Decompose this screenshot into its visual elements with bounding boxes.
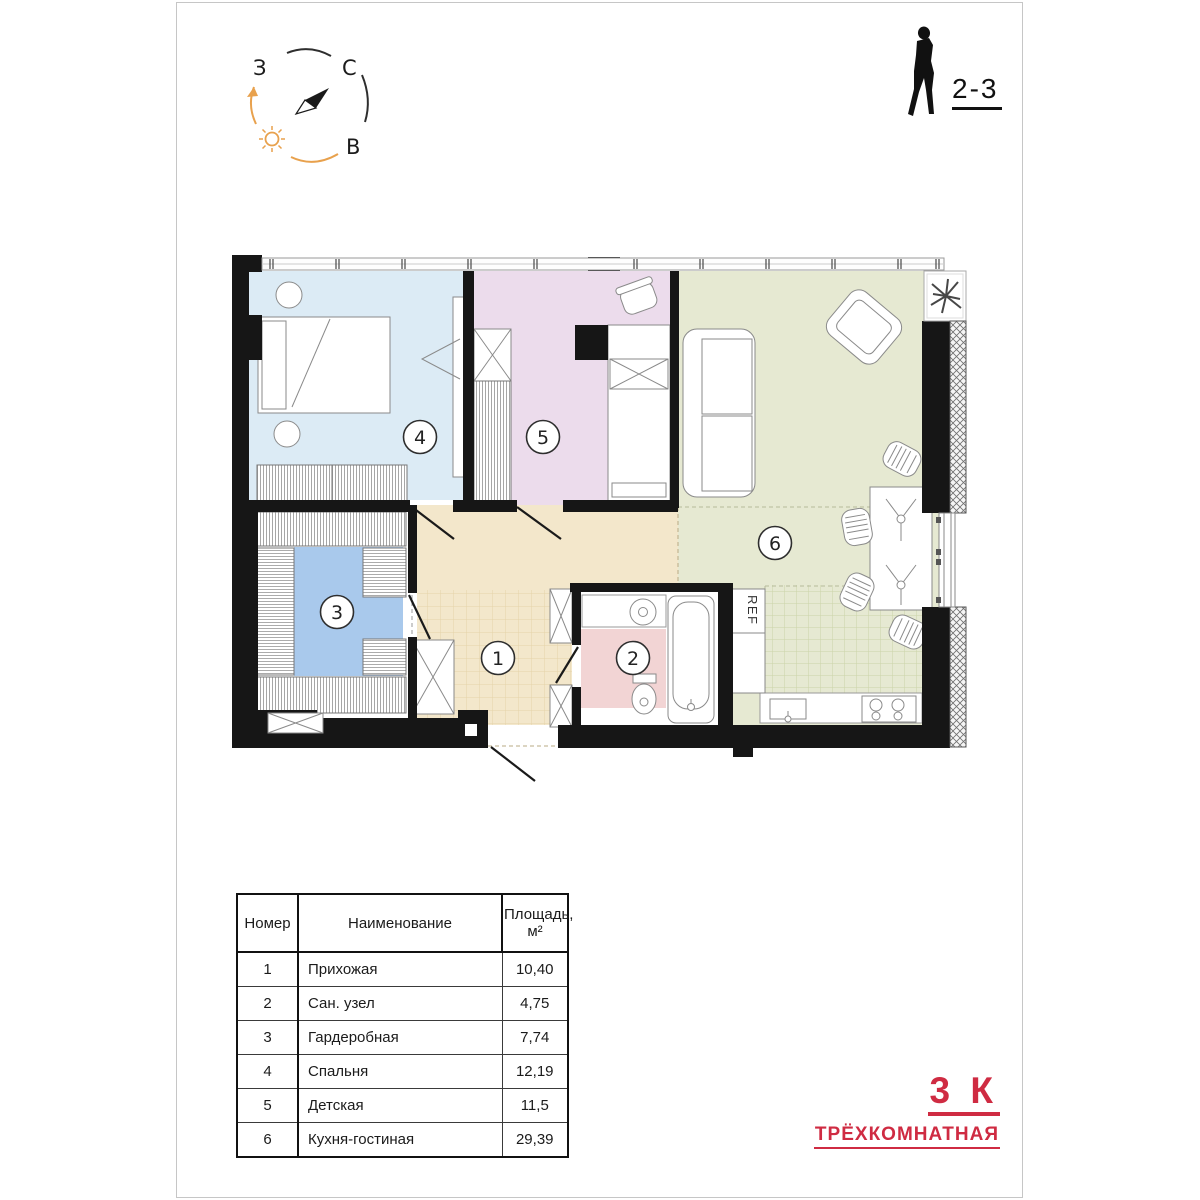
room-badge-6: 6: [759, 527, 792, 560]
table-row: 1 Прихожая 10,40: [237, 952, 568, 987]
compass-rose: З С В: [243, 26, 393, 166]
room-name: Детская: [298, 1089, 502, 1123]
apartment-type-short: 3 К: [928, 1072, 1000, 1116]
refrigerator-label: REF: [745, 595, 760, 626]
apartment-type-block: 3 К ТРЁХКОМНАТНАЯ: [700, 1072, 1000, 1149]
room-badge-1: 1: [482, 642, 515, 675]
col-header-area-line1: Площадь,: [504, 906, 573, 923]
room-number: 6: [237, 1123, 298, 1158]
single-bed: [608, 325, 670, 502]
table-row: 3 Гардеробная 7,74: [237, 1021, 568, 1055]
room-area: 7,74: [502, 1021, 568, 1055]
col-header-name: Наименование: [298, 894, 502, 952]
walking-person-icon: [905, 26, 941, 118]
svg-text:3: 3: [331, 602, 343, 624]
table-row: 5 Детская 11,5: [237, 1089, 568, 1123]
wall-cabinet: [453, 297, 464, 477]
room-name: Кухня-гостиная: [298, 1123, 502, 1158]
room-area: 11,5: [502, 1089, 568, 1123]
bedroom-wardrobe: [257, 465, 407, 503]
compass-arc-north: [287, 49, 331, 56]
svg-text:1: 1: [492, 648, 504, 670]
room-number: 1: [237, 952, 298, 987]
compass-arc-east: [362, 75, 368, 122]
sun-icon: [259, 126, 285, 152]
room-number: 5: [237, 1089, 298, 1123]
compass-arc-south-orange: [291, 154, 338, 162]
room-name: Гардеробная: [298, 1021, 502, 1055]
rooms-table-header: Номер Наименование Площадь, м²: [237, 894, 568, 952]
room-area: 29,39: [502, 1123, 568, 1158]
col-header-area-line2: м²: [527, 923, 542, 940]
niche-shelf: [268, 713, 323, 733]
room-number: 4: [237, 1055, 298, 1089]
room-name: Прихожая: [298, 952, 502, 987]
room-badge-5: 5: [527, 421, 560, 454]
room-badge-2: 2: [617, 642, 650, 675]
room-number: 3: [237, 1021, 298, 1055]
glazing-lower: [950, 607, 966, 747]
hallway-strip-floor: [417, 505, 678, 590]
compass-north-label: С: [342, 56, 357, 80]
table-row: 4 Спальня 12,19: [237, 1055, 568, 1089]
svg-text:5: 5: [537, 427, 549, 449]
room-badge-3: 3: [321, 596, 354, 629]
floor-plan: REF 1 2 3 4 5 6: [232, 255, 975, 795]
room-badge-4: 4: [404, 421, 437, 454]
balcony-door: [936, 513, 955, 607]
svg-text:6: 6: [769, 533, 781, 555]
kitchen-counter: [760, 693, 922, 723]
wall-niche: [465, 724, 477, 736]
double-bed: [258, 317, 390, 413]
apartment-type-full: ТРЁХКОМНАТНАЯ: [814, 1125, 1000, 1149]
col-header-number: Номер: [237, 894, 298, 952]
compass-needle-icon: [296, 88, 329, 114]
col-header-area: Площадь, м²: [502, 894, 568, 952]
sofa: [683, 329, 755, 497]
washing-machine: [630, 599, 656, 625]
room-area: 4,75: [502, 987, 568, 1021]
table-row: 6 Кухня-гостиная 29,39: [237, 1123, 568, 1158]
nightstand: [274, 421, 300, 447]
compass-east-label: В: [346, 135, 360, 159]
toilet: [632, 674, 656, 714]
floors-label: 2-3: [952, 74, 1002, 110]
room-name: Сан. узел: [298, 987, 502, 1021]
kids-closet: [474, 329, 511, 503]
compass-west-label: З: [253, 56, 266, 80]
room-area: 10,40: [502, 952, 568, 987]
room-area: 12,19: [502, 1055, 568, 1089]
glazing-upper: [950, 321, 966, 513]
svg-text:4: 4: [414, 427, 426, 449]
plant-corner: [924, 271, 966, 321]
table-row: 2 Сан. узел 4,75: [237, 987, 568, 1021]
bathtub: [668, 596, 714, 723]
nightstand: [276, 282, 302, 308]
tall-cabinet: [728, 633, 765, 693]
rooms-table: Номер Наименование Площадь, м² 1 Прихожа…: [236, 893, 569, 1158]
room-number: 2: [237, 987, 298, 1021]
room-name: Спальня: [298, 1055, 502, 1089]
door-entry: [491, 747, 535, 781]
stove: [862, 696, 916, 722]
svg-text:2: 2: [627, 648, 639, 670]
